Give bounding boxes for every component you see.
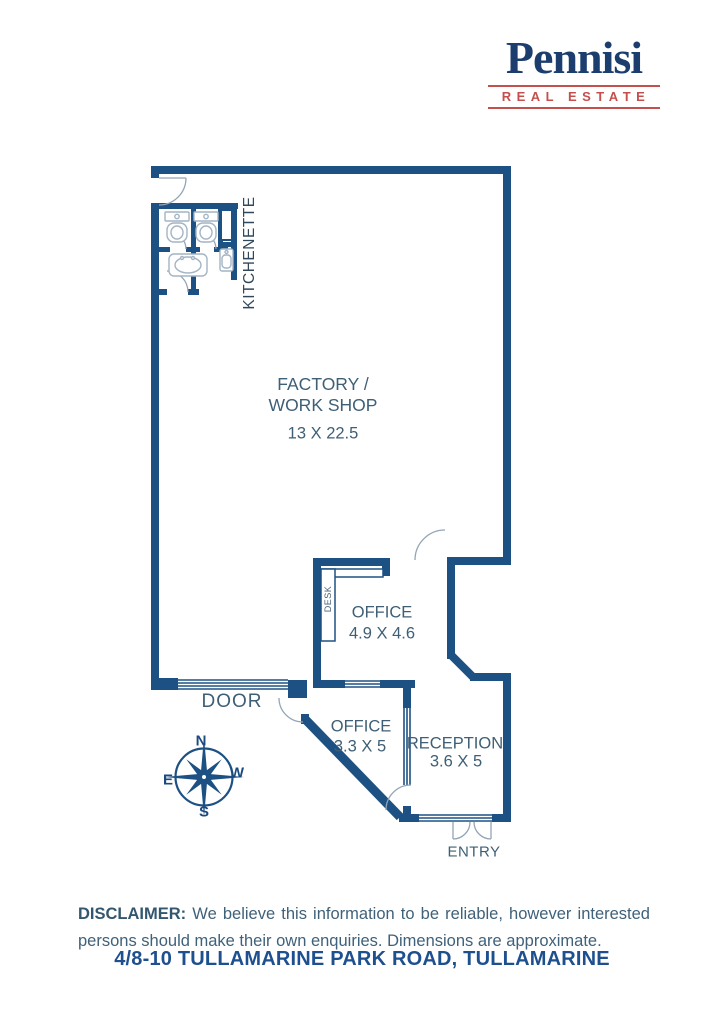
door-label: DOOR [202,691,263,713]
wall-office-top-left [313,558,321,688]
toilet-icon-right [194,212,218,242]
wall-washroom-mid-a [159,247,170,252]
property-address: 4/8-10 TULLAMARINE PARK ROAD, TULLAMARIN… [0,948,724,971]
floorplan-page: Pennisi REAL ESTATE [0,0,724,1024]
wall-office-top-top [313,558,390,566]
wall-right-reception [503,673,511,822]
vanity-basin-icon [169,254,207,276]
window-office-lower-top [345,681,380,687]
wall-right-factory [503,166,511,565]
factory-dims: 13 X 22.5 [288,425,359,444]
reception-dims: 3.6 X 5 [430,753,482,772]
office-lower-label: OFFICE [331,718,392,737]
kitchenette-cupboard-icon [221,210,232,240]
floorplan-drawing [0,0,724,1024]
wall-top [151,166,511,174]
compass-east-label: E [163,772,173,789]
wall-office-lower-top-a [313,680,345,688]
toilet-icon-left [165,212,189,242]
disclaimer-text: DISCLAIMER: We believe this information … [78,901,650,955]
factory-label-line1: FACTORY / [269,374,378,395]
compass-south-label: S [199,804,209,821]
door-swing-office-top [415,530,445,560]
compass-north-label: N [196,733,207,750]
door-swing-entry-double [453,822,491,839]
wall-divider-top [403,688,411,708]
factory-label-line2: WORK SHOP [269,395,378,416]
entry-label: ENTRY [447,844,500,861]
compass-west-label: W [230,765,244,782]
office-lower-dims: 3.3 X 5 [334,738,386,757]
wall-office-lower-top-b [380,680,415,688]
kitchenette-label: KITCHENETTE [241,196,259,309]
wall-washroom-mid-b [186,247,200,252]
wall-rollerdoor-stub [151,678,178,690]
factory-label: FACTORY / WORK SHOP [269,374,378,416]
kitchenette-sink-icon [220,249,233,271]
wall-washroom-bottom-a [159,289,167,295]
door-swing-topleft-entry [159,178,186,205]
door-swing-corner [279,698,303,722]
reception-label: RECEPTION [407,735,503,754]
wall-left-main [151,203,159,690]
office-top-dims: 4.9 X 4.6 [349,625,415,644]
desk-label: DESK [323,586,333,613]
wall-bottom-right-seg [492,814,511,822]
office-top-label: OFFICE [352,604,413,623]
wall-divider-bottom [403,806,411,818]
wall-washroom-top [159,203,238,209]
wall-corner-block [288,680,307,698]
roller-door-stripes [178,680,288,689]
window-reception-front [419,815,494,821]
wall-left-upper [151,166,159,178]
disclaimer-heading: DISCLAIMER: [78,905,186,923]
wall-notch-left [447,557,455,659]
wall-notch-top [447,557,511,565]
